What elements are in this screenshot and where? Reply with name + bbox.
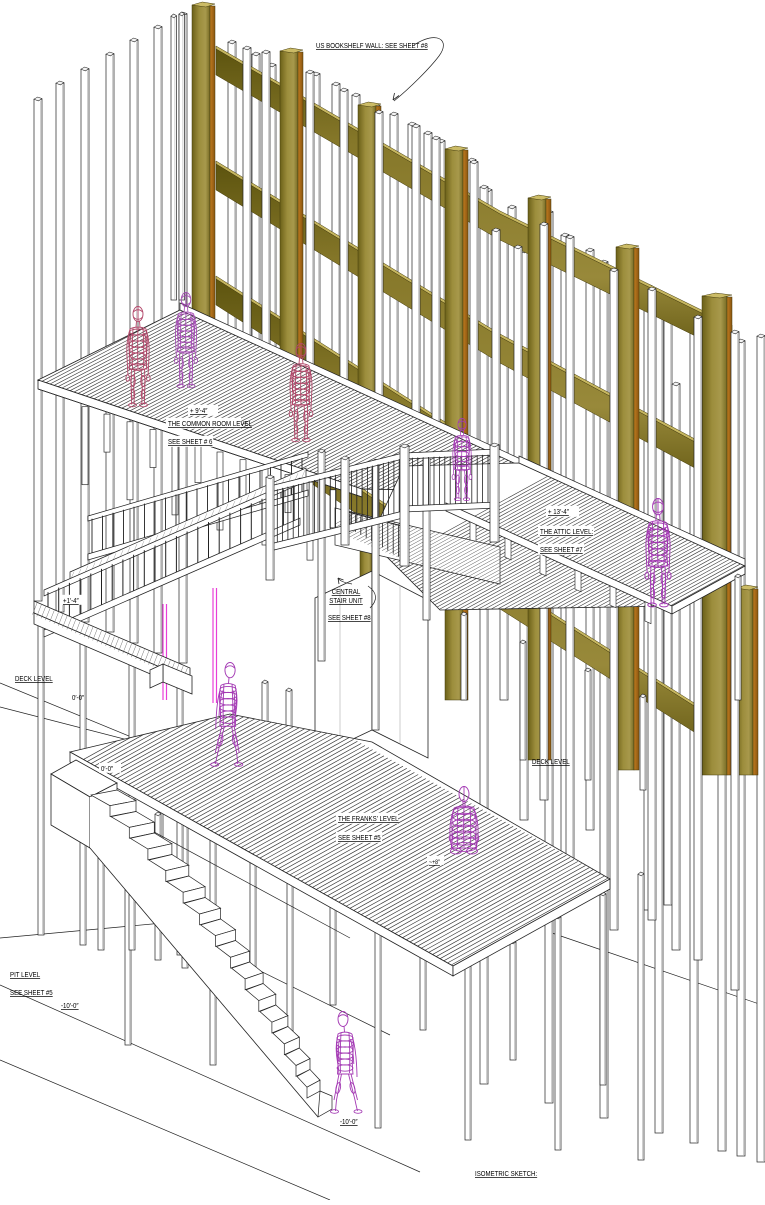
svg-text:-10′-0″: -10′-0″: [340, 1119, 358, 1127]
svg-text:THE COMMON ROOM LEVEL: THE COMMON ROOM LEVEL: [168, 421, 252, 429]
svg-text:SEE SHEET # 6: SEE SHEET # 6: [168, 439, 213, 447]
svg-text:SEE SHEET #5: SEE SHEET #5: [10, 990, 53, 998]
svg-text:~+8″: ~+8″: [429, 860, 440, 866]
svg-text:SEE SHEET #7: SEE SHEET #7: [540, 547, 583, 555]
svg-text:THE FRANKS’ LEVEL: THE FRANKS’ LEVEL: [338, 816, 399, 824]
svg-text:SEE SHEET #5: SEE SHEET #5: [338, 835, 381, 843]
svg-text:US BOOKSHELF WALL: SEE SHEET #: US BOOKSHELF WALL: SEE SHEET #8: [316, 43, 428, 51]
svg-text:SEE SHEET #8: SEE SHEET #8: [328, 615, 371, 623]
svg-text:+ 9′-4″: + 9′-4″: [190, 408, 208, 416]
svg-text:-10′-0″: -10′-0″: [61, 1003, 79, 1011]
svg-text:DECK LEVEL: DECK LEVEL: [532, 759, 570, 767]
svg-text:+1′-4″: +1′-4″: [63, 598, 79, 606]
svg-text:0′-0″: 0′-0″: [101, 766, 114, 774]
svg-text:CENTRAL: CENTRAL: [332, 589, 361, 597]
svg-text:0′-0″: 0′-0″: [72, 695, 85, 703]
svg-text:STAIR UNIT: STAIR UNIT: [329, 598, 363, 606]
svg-text:+ 13′-4″: + 13′-4″: [548, 509, 569, 517]
svg-text:DECK LEVEL: DECK LEVEL: [15, 676, 53, 684]
svg-text:THE ATTIC LEVEL:: THE ATTIC LEVEL:: [540, 529, 593, 537]
svg-text:ISOMETRIC SKETCH:: ISOMETRIC SKETCH:: [475, 1171, 537, 1179]
svg-text:PIT LEVEL: PIT LEVEL: [10, 972, 40, 980]
